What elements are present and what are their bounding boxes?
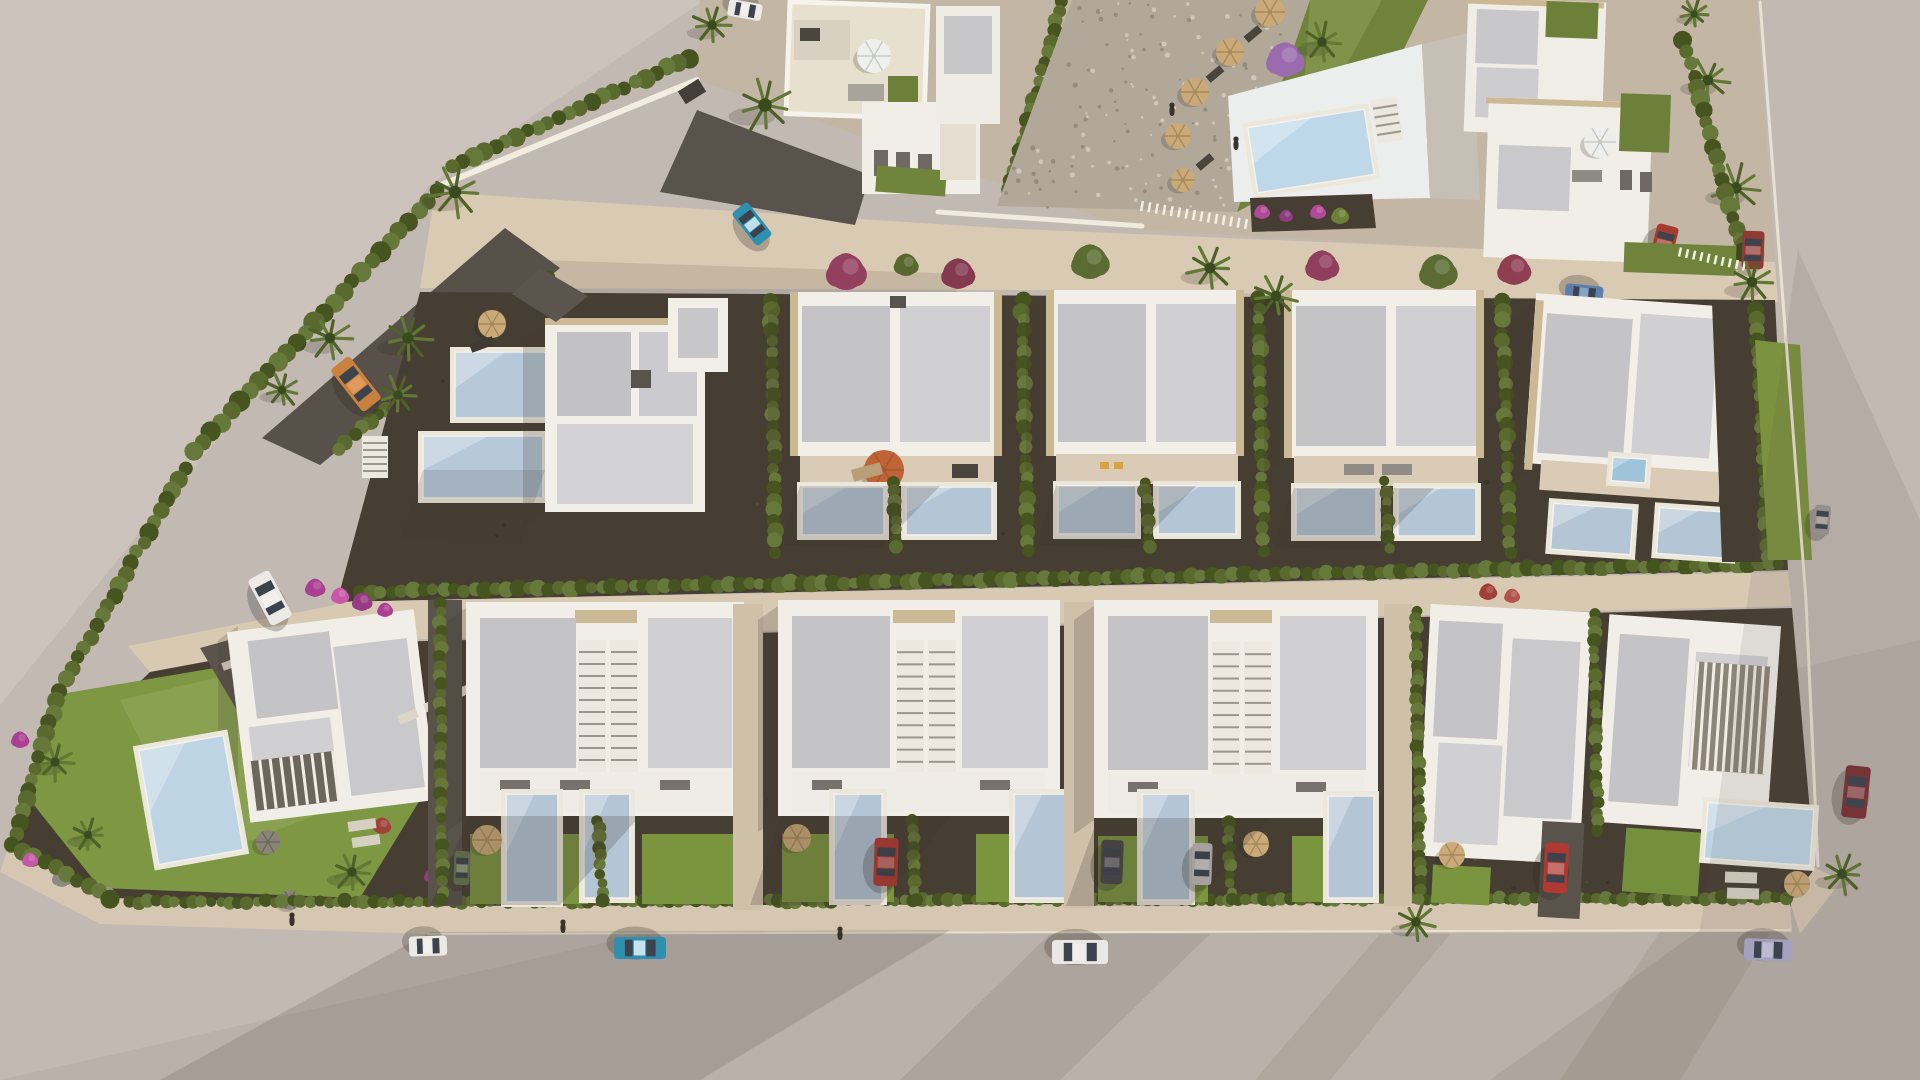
l2-trim [575, 610, 637, 623]
l6-roof-a [1608, 634, 1690, 806]
l2-stairs-a [578, 640, 606, 772]
m3-roof-b [1156, 304, 1236, 442]
l1-pergola [249, 751, 338, 811]
l3-pool-right [1009, 789, 1071, 903]
b3-a-greenroof [1545, 1, 1598, 39]
b1-balcony [940, 120, 976, 180]
m5-pool-left [1545, 498, 1639, 560]
m3-trim-left [1046, 290, 1054, 456]
b1-sofa [848, 84, 884, 101]
m3-roof-a [1058, 304, 1146, 442]
m1-tower-roof [678, 308, 718, 358]
m3-chair-b [1114, 462, 1123, 469]
m2-chimney [890, 296, 906, 308]
l2-window-b [560, 780, 590, 790]
m3-house-shadow [1026, 296, 1046, 472]
l5-roof-a [1433, 620, 1503, 739]
person-lawn-b [1233, 136, 1238, 150]
m3-trim-right [1236, 290, 1244, 456]
l2-window-a [500, 780, 530, 790]
m5-roof-b [1631, 313, 1719, 458]
m5-jacuzzi [1606, 452, 1652, 489]
b1-grill [800, 28, 820, 41]
l4-pool-right [1323, 791, 1379, 903]
m4-trim-left [1284, 290, 1292, 458]
l4-house-shadow [1074, 606, 1094, 834]
m3-chair-a [1100, 462, 1109, 469]
m1-roof-a [557, 332, 631, 416]
m2-roof-b [900, 306, 990, 442]
l2-stairs-b [610, 640, 638, 772]
aerial-render-viewport [0, 0, 1920, 1080]
l2-house-shadow [446, 608, 466, 832]
l3-window-a [812, 780, 842, 790]
l3-trim [893, 610, 955, 623]
m4-lounger-b [1382, 464, 1412, 475]
m1-roof-c [557, 424, 693, 504]
l3-roof-b [962, 616, 1048, 768]
l2-roof-b [648, 618, 732, 768]
l4-trim [1210, 610, 1272, 623]
m1-pools-shadow [400, 470, 545, 545]
l5-roof-c [1503, 638, 1580, 819]
person-sidewalk-a [289, 912, 294, 926]
l5-drive-paved [1384, 604, 1412, 906]
l4-stairs-b [1244, 642, 1272, 776]
m2-roof-a [802, 306, 890, 442]
m4-lounger-a [1344, 464, 1374, 475]
m2-house-shadow [768, 298, 790, 474]
l5-roof-b [1433, 742, 1502, 845]
l2-window-c [660, 780, 690, 790]
l4-roof-b [1280, 616, 1366, 770]
m4-house-shadow [1264, 296, 1284, 474]
person-lawn-a [1169, 102, 1174, 116]
b3-furniture [1572, 170, 1602, 182]
l3-stairs-b [928, 640, 956, 774]
l4-window-b [1296, 782, 1326, 792]
l1-roof-a [248, 631, 339, 718]
b3-window-a [1620, 170, 1632, 190]
m1-stairs [362, 436, 388, 478]
m5-roof-a [1537, 313, 1633, 459]
b2-panel [944, 16, 992, 74]
l4-roof-a [1108, 616, 1208, 770]
aerial-development-render [0, 0, 1920, 1080]
l3-house-shadow [758, 606, 778, 832]
b1-lawn [875, 166, 947, 197]
m2-trim-right [994, 292, 1002, 456]
l3-window-b [980, 780, 1010, 790]
b3-greenroof2 [1619, 93, 1671, 153]
l3-roof-a [792, 616, 890, 768]
l6-lawn [1622, 827, 1702, 896]
l2-roof-a [480, 618, 576, 768]
b3-b-panel [1497, 145, 1571, 211]
l2-lawn-right [642, 834, 734, 904]
person-sidewalk-c [837, 926, 842, 940]
m4-roof-a [1296, 306, 1386, 446]
m1-chimney [631, 370, 651, 388]
l5-lawn [1431, 865, 1491, 906]
m4-roof-b [1396, 306, 1476, 446]
person-sidewalk-b [560, 919, 565, 933]
lawn-topright [1624, 242, 1737, 276]
b3-a-panel1 [1475, 9, 1539, 65]
m2-trim-left [790, 292, 798, 456]
b3-window-b [1640, 172, 1652, 192]
m4-trim-right [1476, 290, 1484, 458]
l4-stairs-a [1212, 642, 1240, 776]
m2-dining [952, 464, 978, 478]
l3-stairs-a [896, 640, 924, 774]
